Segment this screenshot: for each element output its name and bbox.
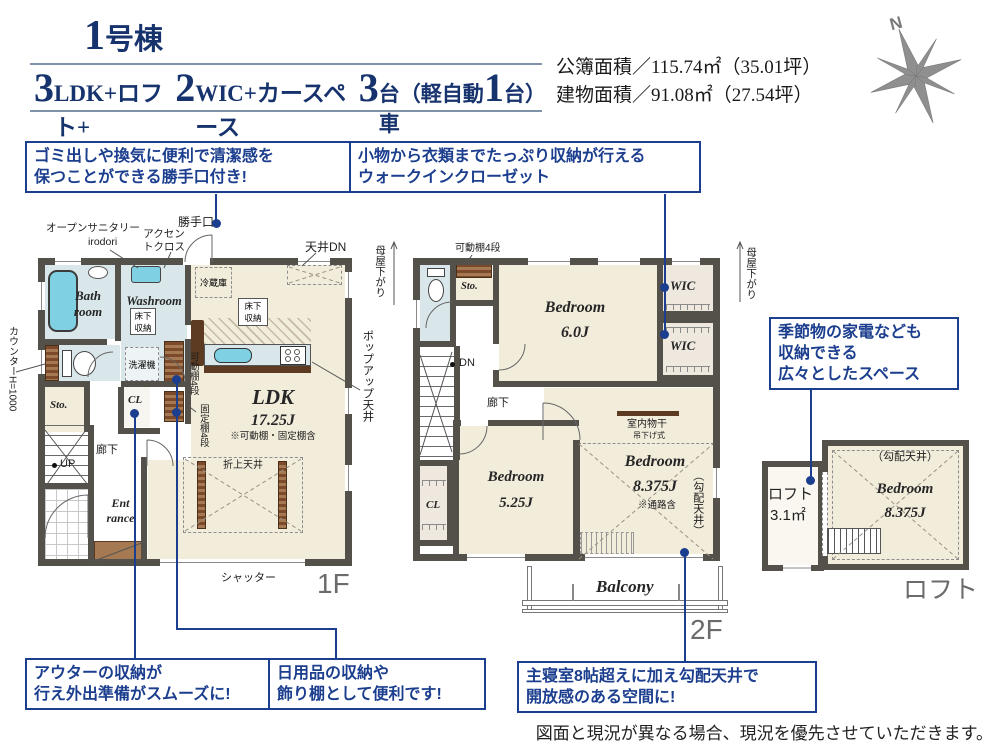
floor-label-1f: 1F (317, 568, 350, 600)
window (598, 258, 640, 265)
spec-num: 3 (359, 64, 379, 111)
connector-dot (806, 476, 815, 485)
loft-bedroom-label: Bedroom (850, 480, 960, 499)
window (783, 565, 811, 571)
disclaimer-text: 図面と現況が異なる場合、現況を優先させていただきます。 (536, 719, 993, 744)
window (298, 258, 330, 265)
loft-slope-label: （勾配天井） (855, 451, 955, 465)
spec-text: 台） (504, 78, 546, 108)
accent-cloth-label: アクセン トクロス (138, 228, 190, 254)
window (345, 272, 352, 298)
laundry-sub-label: 吊下げ式 (633, 431, 665, 441)
wall (493, 381, 663, 387)
door-opening (493, 344, 499, 370)
connector-line (684, 551, 686, 663)
balcony-post (678, 584, 680, 601)
wall (420, 341, 456, 347)
connector-line (664, 194, 666, 336)
hallway-label: 廊下 (487, 397, 509, 411)
ldk-label: LDK (228, 384, 318, 410)
building-number: 1 (84, 13, 105, 59)
connector-dot (172, 408, 181, 417)
up-dot-icon (52, 463, 57, 468)
shutter-label: シャッター (221, 572, 276, 586)
balcony-rail (522, 609, 728, 613)
connector-line (176, 628, 337, 630)
building-suffix: 号棟 (105, 24, 163, 56)
closet-label: CL (426, 499, 440, 513)
counter-height-label: カウンターH=1000 (5, 326, 18, 436)
registered-area: 公簿面積／115.74㎡（35.01坪） (556, 52, 821, 79)
laundry-label: 室内物干 (627, 419, 667, 432)
bathroom-label: Bath room (62, 288, 114, 321)
fixed-shelf-label: 固定棚4段 (197, 404, 209, 474)
floor-label-loft: ロフト (903, 570, 978, 606)
spec-text: LDK+ロフト+ (54, 74, 175, 142)
window (413, 300, 420, 328)
storage-label: Sto. (461, 280, 478, 293)
window (38, 350, 45, 374)
wall (450, 265, 456, 347)
window (55, 258, 81, 265)
callout-outer-storage: アウターの収納が 行え外出準備がスムーズに! (25, 658, 279, 710)
washroom-label: Washroom (121, 294, 187, 310)
spec-num: 1 (484, 64, 504, 111)
storage-label: Sto. (50, 399, 67, 413)
loft-ladder (827, 528, 881, 554)
wall (573, 440, 580, 554)
callout-master-bedroom: 主寝室8帖超えに加え勾配天井で 開放感のある空間に! (517, 661, 817, 713)
spec-num: 3 (34, 64, 54, 111)
wall (413, 540, 453, 546)
bedroom2-size-label: 5.25J (462, 494, 570, 513)
connector-dot (660, 283, 669, 292)
window (345, 465, 352, 491)
loft-bedroom-size-label: 8.375J (850, 504, 960, 523)
backdoor-opening (183, 258, 210, 265)
connector-line (810, 389, 812, 481)
callout-loft: 季節物の家電なども 収納できる 広々としたスペース (769, 317, 959, 390)
bedroom1-label: Bedroom (515, 298, 635, 318)
wall (45, 381, 88, 387)
balcony-rail (522, 600, 728, 606)
moya-sagari-label-right: 母屋下がり (744, 247, 757, 327)
building-area: 建物面積／91.08㎡（27.54坪） (556, 80, 813, 107)
floorplan-page: 1号棟 3 LDK+ロフト+ 2 WIC+カースペース 3 台（軽自動車 1 台… (0, 0, 1000, 750)
balcony-label: Balcony (596, 576, 654, 597)
spec-line: 3 LDK+ロフト+ 2 WIC+カースペース 3 台（軽自動車 1 台） (34, 64, 546, 110)
shutter-opening (160, 559, 305, 566)
bedroom3-label: Bedroom (600, 452, 710, 472)
connector-line (176, 380, 178, 630)
wall (118, 428, 160, 434)
window (38, 282, 45, 310)
open-sanitary-label: オープンサニタリー (46, 222, 140, 235)
hallway-label: 廊下 (96, 444, 118, 458)
slope-ceiling-label: （勾配天井） (690, 470, 704, 560)
door-opening (461, 420, 488, 426)
callout-daily-storage: 日用品の収納や 飾り棚として便利です! (268, 658, 486, 710)
wic2-label: WIC (670, 338, 695, 354)
moya-sagari-label-left: 母屋下がり (373, 245, 386, 325)
bedroom1-size-label: 6.0J (515, 323, 635, 343)
window (528, 258, 570, 265)
loft-name-label: ロフト (768, 486, 813, 505)
entrance-label: Ent rance (94, 496, 147, 526)
ceiling-dn-label: 天井DN (305, 240, 346, 255)
spec-text: 台（軽自動車 (379, 78, 484, 138)
closet-label: CL (128, 394, 142, 408)
spec-num: 2 (175, 64, 195, 111)
bedroom2-label: Bedroom (462, 468, 570, 487)
irodori-label: irodori (88, 236, 117, 249)
popup-ceiling-label: ポップアップ天井 (360, 330, 374, 440)
balcony-post (572, 584, 574, 601)
connector-dot (212, 219, 221, 228)
loft-size-label: 3.1㎡ (770, 507, 806, 526)
bedroom3-note-label: ※通路含 (612, 500, 702, 512)
wall (118, 387, 124, 432)
ldk-note-label: ※可動棚・固定棚含 (218, 431, 328, 443)
callout-wic: 小物から衣類までたっぷり収納が行える ウォークインクローゼット (349, 141, 701, 193)
window (345, 388, 352, 414)
connector-line (134, 413, 136, 660)
callout-backdoor: ゴミ出しや換気に便利で清潔感を 保つことができる勝手口付き! (25, 141, 359, 193)
movable-shelf-label: 可動棚4段 (455, 243, 501, 256)
dn-dot-icon (450, 362, 455, 367)
stairs-up-label: UP (60, 458, 75, 472)
wall (45, 483, 94, 489)
wic1-label: WIC (670, 278, 695, 294)
wall (45, 339, 107, 345)
window (672, 258, 700, 265)
stairs-dn-label: DN (459, 357, 475, 371)
wall (456, 300, 494, 306)
spec-text: WIC+カースペース (195, 74, 359, 142)
window (467, 554, 525, 561)
connector-dot (660, 330, 669, 339)
window (713, 468, 720, 498)
ldk-size-label: 17.25J (228, 411, 318, 431)
floor-label-2f: 2F (690, 614, 723, 646)
wall (657, 375, 713, 387)
wall (88, 425, 94, 487)
connector-dot (680, 548, 689, 557)
connector-line (335, 628, 337, 660)
compass-icon (860, 10, 972, 128)
connector-dot (130, 409, 139, 418)
page-title: 1号棟 (84, 12, 163, 60)
wall (453, 420, 459, 554)
connector-dot (172, 375, 181, 384)
